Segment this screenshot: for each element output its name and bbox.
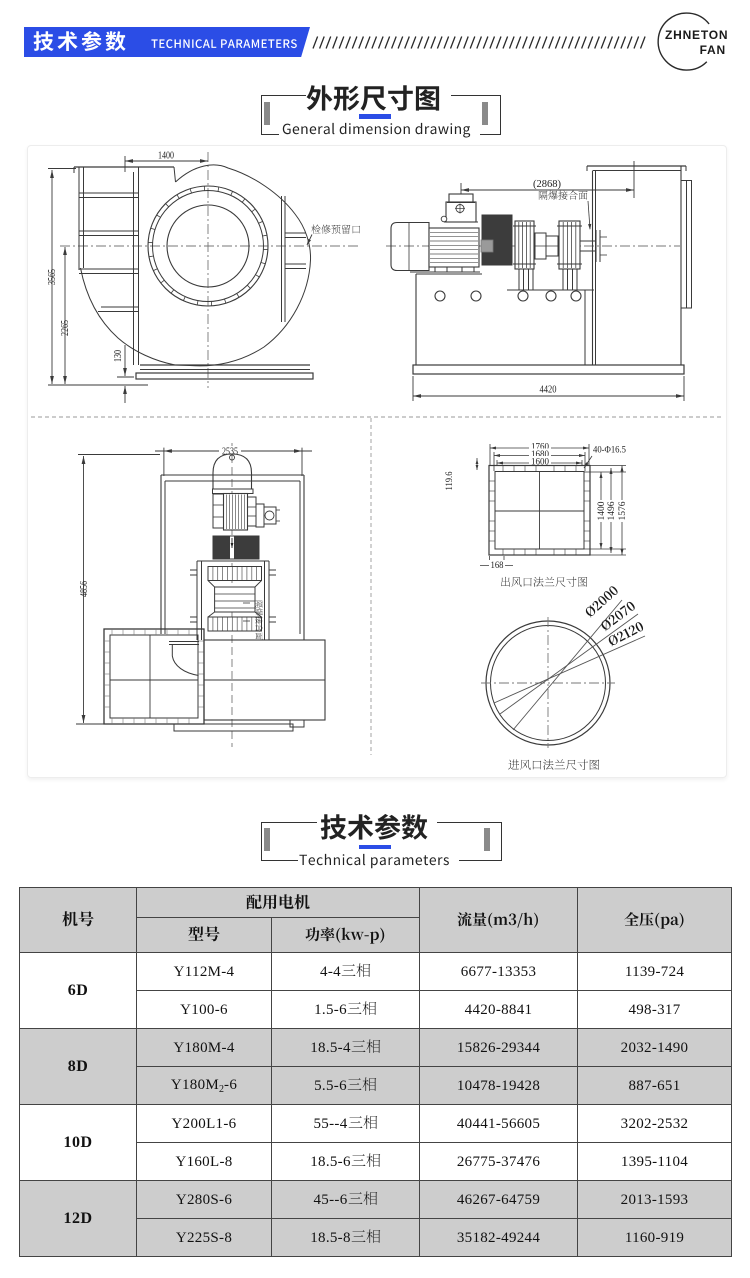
svg-text:119.6: 119.6 [445,471,455,490]
svg-text:2265: 2265 [60,320,71,336]
svg-text:4856: 4856 [79,581,90,597]
svg-text:40-Φ16.5: 40-Φ16.5 [593,445,626,455]
svg-text:1576: 1576 [617,501,627,521]
svg-text:168: 168 [491,561,504,571]
svg-text:1400: 1400 [596,501,606,521]
svg-text:130: 130 [113,350,124,362]
svg-text:1400: 1400 [158,151,174,162]
svg-text:1496: 1496 [606,501,616,521]
svg-text:(2868): (2868) [533,179,561,190]
svg-text:3565: 3565 [47,269,58,285]
svg-text:1600: 1600 [531,457,550,467]
svg-text:4420: 4420 [540,385,557,396]
